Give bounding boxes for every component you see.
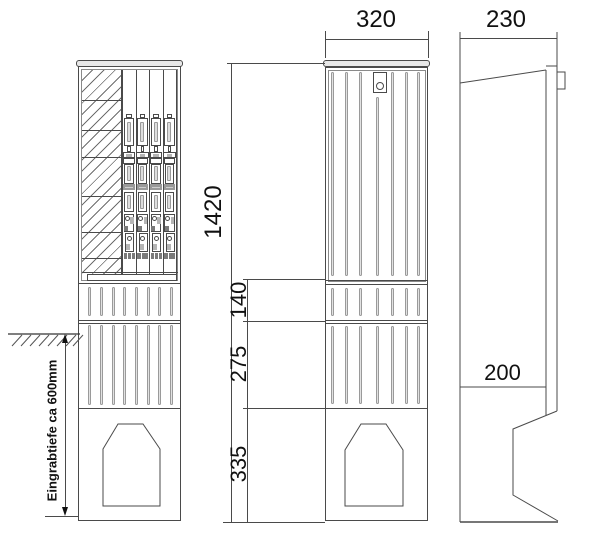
front-door-rib [359, 72, 362, 276]
front-rib-lower-band [376, 326, 379, 404]
front-rib-lower-band [359, 326, 362, 404]
dim-seg-ext-1 [243, 279, 325, 280]
burial-depth-bottom-tick [45, 516, 78, 517]
left-rib-upper-band [170, 287, 173, 316]
fuse-handle-lower-slot [154, 166, 158, 181]
left-rib-lower-band [112, 325, 115, 405]
left-rib-upper-band [158, 287, 161, 316]
left-rib-lower-band [158, 325, 161, 405]
terminal-block-a [171, 217, 175, 224]
terminal-screw-b [167, 236, 172, 241]
terminal-block-a [130, 217, 134, 224]
left-rib-upper-band [147, 287, 150, 316]
front-rib-lower-band [331, 326, 334, 404]
terminal-screw-b [127, 236, 132, 241]
dim-230-label: 230 [476, 6, 536, 34]
terminal-contact-a [138, 226, 142, 231]
dim-140-label: 140 [228, 275, 250, 325]
ground-level-symbol [4, 330, 84, 350]
door-bottom-line [325, 280, 428, 281]
side-lower-profile [513, 411, 558, 521]
cable-lug [164, 253, 168, 259]
front-rib-upper-band [405, 288, 408, 316]
dim-1420-label: 1420 [202, 177, 226, 247]
front-door-rib [376, 97, 379, 276]
left-divider-line-2 [78, 323, 181, 324]
fuse-handle-lower-slot [127, 166, 131, 181]
left-rib-upper-band [112, 287, 115, 316]
fuse-handle-upper-slot [167, 122, 171, 142]
hatch-division-line [82, 130, 122, 131]
hatch-division-line [82, 232, 122, 233]
inspection-window-slot [140, 195, 144, 209]
front-rib-upper-band [331, 288, 334, 316]
dim-1420-ext-top [227, 63, 325, 64]
front-rib-lower-band [405, 326, 408, 404]
inspection-window-slot [154, 195, 158, 209]
front-rib-lower-band [391, 326, 394, 404]
left-rib-upper-band [123, 287, 126, 316]
cable-lug [137, 253, 141, 259]
terminal-screw-a [152, 216, 157, 221]
cable-lug [132, 253, 135, 259]
terminal-screw-a [125, 216, 130, 221]
technical-drawing: Eingrabtiefe ca 600mm 320 1420 140 275 3… [0, 0, 600, 551]
front-door-rib [331, 72, 334, 276]
hatch-division-line [82, 258, 122, 259]
front-cable-entry-arch [342, 420, 406, 510]
cable-lug [172, 253, 175, 259]
terminal-block-b [140, 244, 144, 250]
left-rib-lower-band [123, 325, 126, 405]
front-door-rib [417, 72, 420, 276]
front-rib-upper-band [391, 288, 394, 316]
left-rib-lower-band [100, 325, 103, 405]
dim-320-label: 320 [346, 6, 406, 34]
dim-seg-ext-2 [243, 321, 325, 322]
hatch-division-line [82, 100, 122, 101]
left-rib-upper-band [88, 287, 91, 316]
terminal-screw-a [165, 216, 170, 221]
front-rib-upper-band [345, 288, 348, 316]
front-divider-line-1 [325, 320, 428, 321]
rating-label-text-mark [152, 187, 160, 189]
terminal-screw-b [140, 236, 145, 241]
terminal-block-b [126, 244, 130, 250]
cable-lug [151, 253, 155, 259]
fuse-column-right-border [176, 70, 177, 275]
dim-seg-ext-3 [243, 408, 325, 409]
cable-lug [145, 253, 148, 259]
rating-label-text-mark [125, 187, 133, 189]
burial-depth-label: Eingrabtiefe ca 600mm [45, 356, 60, 506]
busbar-clamp-insert [167, 154, 173, 157]
side-roof-slope [460, 70, 546, 83]
left-plinth-top-line [78, 408, 181, 409]
side-view [450, 30, 580, 530]
terminal-screw-a [138, 216, 143, 221]
rating-label-text-mark [139, 187, 147, 189]
front-rib-upper-band [417, 288, 420, 316]
front-door-rib [405, 72, 408, 276]
left-rib-lower-band [170, 325, 173, 405]
terminal-contact-a [124, 226, 128, 231]
lock-cylinder [376, 82, 384, 90]
enclosure-bottom-strip [87, 274, 177, 281]
rating-label-text-mark [166, 187, 174, 189]
terminal-block-b [153, 244, 157, 250]
front-rib-upper-band [376, 288, 379, 316]
burial-depth-arrow-top [62, 334, 68, 343]
busbar-clamp-insert [126, 154, 132, 157]
front-rib-lower-band [417, 326, 420, 404]
left-cable-entry-arch [100, 420, 164, 510]
front-plinth-top-line [325, 408, 428, 409]
burial-depth-arrow-bottom [62, 507, 68, 516]
dim-335-label: 335 [228, 439, 250, 489]
fuse-handle-upper-slot [127, 122, 131, 142]
fuse-handle-lower-slot [167, 166, 171, 181]
terminal-contact-a [151, 226, 155, 231]
dim-200-label: 200 [480, 360, 525, 386]
dim-320-ext-left [325, 31, 326, 58]
left-divider-line-1 [78, 320, 181, 321]
burial-depth-dim-line [65, 340, 66, 510]
terminal-block-a [157, 217, 161, 224]
terminal-contact-a [165, 226, 169, 231]
busbar-clamp-insert [140, 154, 146, 157]
hatch-division-line [82, 196, 122, 197]
front-divider-line-2 [325, 323, 428, 324]
front-door-rib [391, 72, 394, 276]
left-rib-lower-band [135, 325, 138, 405]
front-door-rib [345, 72, 348, 276]
dim-275-label: 275 [228, 339, 250, 389]
cable-lug [159, 253, 162, 259]
terminal-block-a [144, 217, 148, 224]
front-view-top-cap [323, 60, 430, 67]
fuse-handle-upper-slot [140, 122, 144, 142]
dim-bottom-ext [223, 522, 325, 523]
left-rib-lower-band [147, 325, 150, 405]
left-rib-upper-band [135, 287, 138, 316]
side-door-handle [557, 72, 565, 89]
terminal-block-b [167, 244, 171, 250]
left-rib-upper-band [100, 287, 103, 316]
terminal-screw-b [154, 236, 159, 241]
front-rib-upper-band [359, 288, 362, 316]
front-rib-lower-band [345, 326, 348, 404]
busbar-clamp-insert [153, 154, 159, 157]
dim-320-line [325, 39, 428, 40]
hatch-division-line [82, 157, 122, 158]
left-rib-lower-band [88, 325, 91, 405]
fuse-handle-lower-slot [140, 166, 144, 181]
fuse-handle-upper-slot [154, 122, 158, 142]
dim-320-ext-right [428, 31, 429, 58]
inspection-window-slot [167, 195, 171, 209]
cable-lug [124, 253, 128, 259]
inspection-window-slot [127, 195, 131, 209]
